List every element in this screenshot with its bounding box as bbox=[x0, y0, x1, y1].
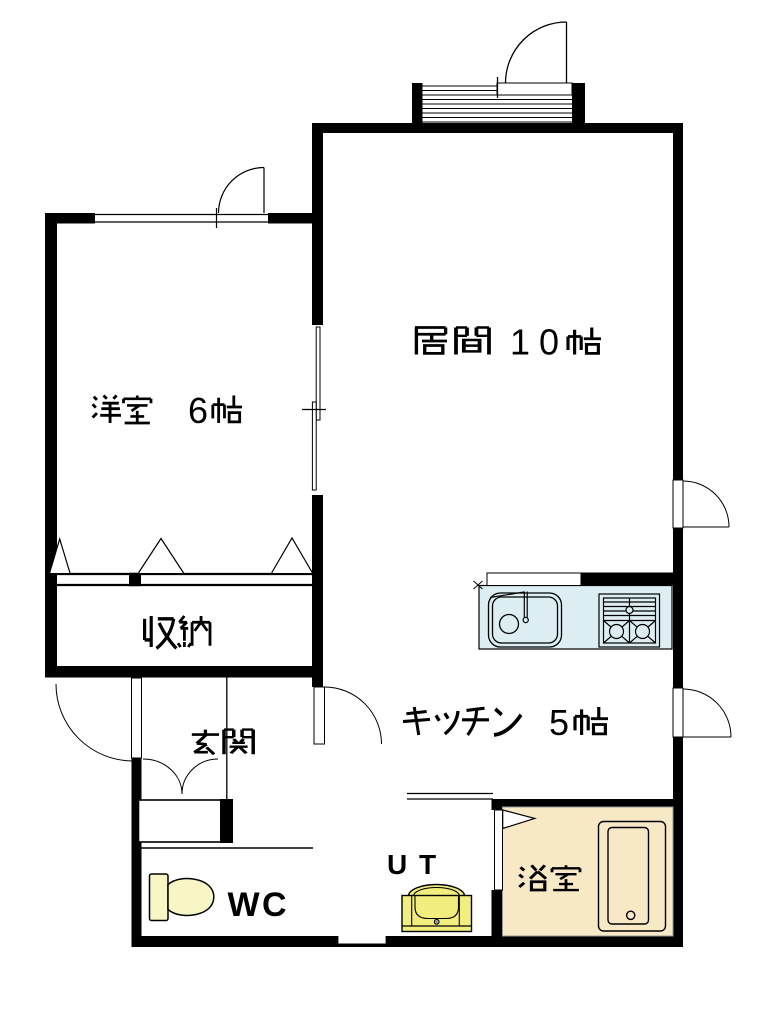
svg-text:0: 0 bbox=[539, 322, 559, 363]
svg-text:6: 6 bbox=[188, 390, 208, 431]
svg-text:U: U bbox=[387, 849, 407, 880]
svg-text:W: W bbox=[228, 886, 261, 924]
svg-text:5: 5 bbox=[549, 702, 569, 743]
svg-text:T: T bbox=[419, 849, 436, 880]
svg-text:1: 1 bbox=[510, 322, 530, 363]
svg-text:C: C bbox=[262, 886, 287, 924]
